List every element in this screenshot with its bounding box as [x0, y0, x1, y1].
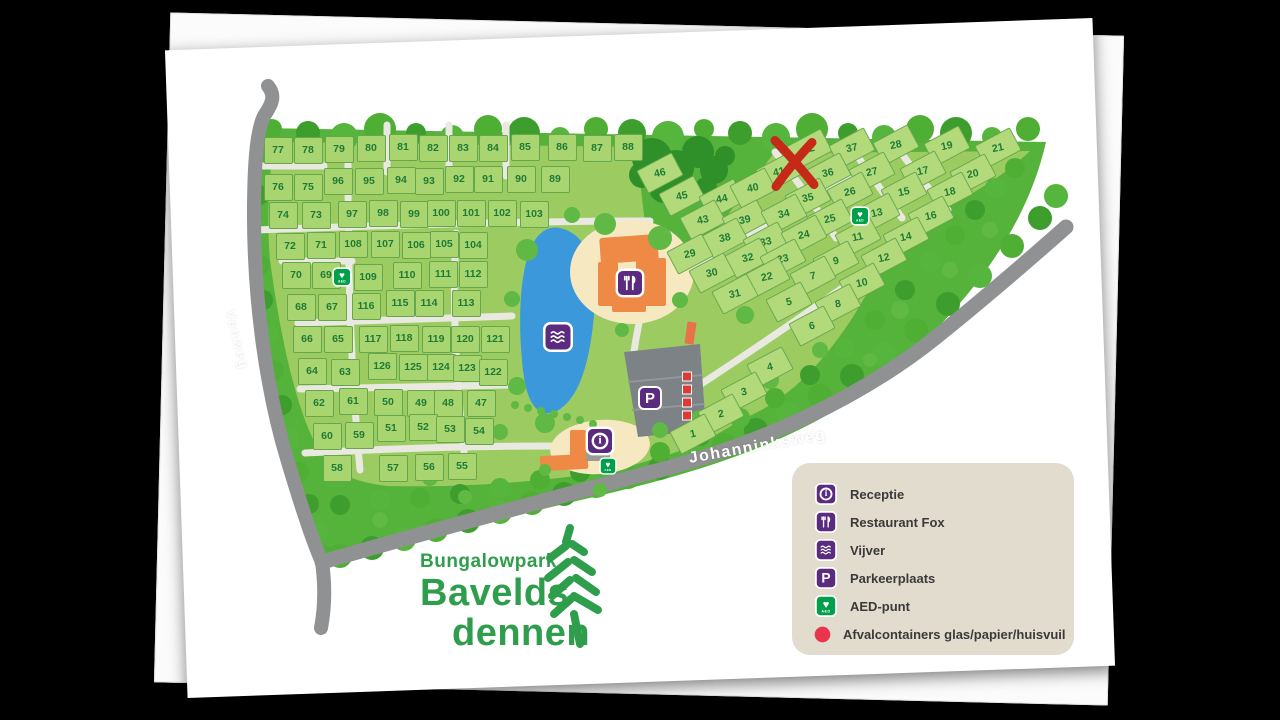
map-legend: i Receptie Restaurant Fox Vijver — [792, 463, 1074, 655]
legend-label: Parkeerplaats — [850, 571, 935, 586]
receptie-icon: i — [815, 483, 837, 505]
legend-label: Restaurant Fox — [850, 515, 945, 530]
vijver-icon — [815, 539, 837, 561]
afvalcontainer-icon — [815, 626, 831, 642]
legend-row-receptie: i Receptie — [814, 480, 1074, 508]
legend-row-vijver: Vijver — [814, 536, 1074, 564]
legend-label: Receptie — [850, 487, 904, 502]
aed-icon: ♥ AED — [815, 595, 837, 617]
legend-row-aed: ♥ AED AED-punt — [814, 592, 1074, 620]
legend-label: AED-punt — [850, 599, 910, 614]
legend-label: Vijver — [850, 543, 885, 558]
bungalowpark-map-poster: 7778798081828384858687887675969594939291… — [0, 0, 1280, 720]
legend-row-afvalcontainers: Afvalcontainers glas/papier/huisvuil — [814, 620, 1074, 648]
park-map-graphic — [0, 0, 1280, 720]
legend-label: Afvalcontainers glas/papier/huisvuil — [843, 627, 1066, 642]
restaurant-icon — [815, 511, 837, 533]
legend-row-restaurant: Restaurant Fox — [814, 508, 1074, 536]
legend-row-parkeerplaats: P Parkeerplaats — [814, 564, 1074, 592]
parkeerplaats-icon: P — [815, 567, 837, 589]
logo-pine-tree-icon — [540, 522, 612, 652]
